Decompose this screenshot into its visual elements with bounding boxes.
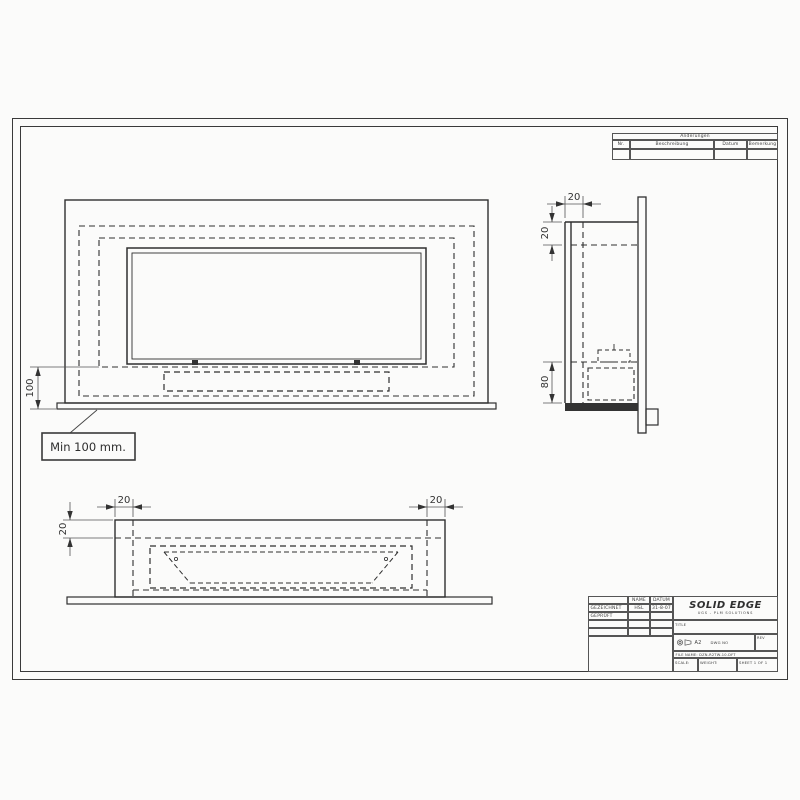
callout-label: Min 100 mm. xyxy=(50,440,126,454)
dim-bottom-front-20-label: 20 xyxy=(58,523,69,536)
approval-empty xyxy=(588,628,628,636)
burner-tray-hidden-front xyxy=(164,372,389,391)
dim-side-top-20-label: 20 xyxy=(540,227,551,240)
approval-drawn-date: 31-8-07 xyxy=(650,604,673,612)
dimension-side-depth: 20 xyxy=(547,192,601,218)
weight-field: WEIGHT: xyxy=(698,658,737,672)
brand-logo-text: SOLID EDGE xyxy=(689,601,762,611)
revision-row-empty xyxy=(747,149,778,160)
approval-empty xyxy=(628,628,650,636)
file-name-field: FILE NAME: DZN-R2TW-10.DFT xyxy=(673,651,778,658)
approval-checked-name xyxy=(628,612,650,620)
revision-col-date: Datum xyxy=(714,140,747,149)
dim-bottom-right-20-label: 20 xyxy=(430,495,443,506)
dimension-side-top-wall: 20 xyxy=(540,206,562,261)
sheet-size: A2 xyxy=(695,640,702,646)
approval-header-blank xyxy=(588,596,628,604)
drawing-area: 100 Min 100 mm. 20 20 xyxy=(0,0,800,800)
revision-table-title: Änderungen xyxy=(612,133,778,140)
dimension-bottom-right-wall: 20 xyxy=(409,495,463,517)
sheet-field: SHEET 1 OF 1 xyxy=(737,658,778,672)
dwg-no-label: DWG NO xyxy=(711,640,729,645)
approval-empty xyxy=(628,620,650,628)
rev-field: REV xyxy=(755,634,778,651)
scale-field: SCALE: xyxy=(673,658,698,672)
dim-side-80-label: 80 xyxy=(540,376,551,389)
dimension-bottom-front-wall: 20 xyxy=(58,502,113,556)
dim-100-label: 100 xyxy=(25,378,36,397)
dimension-bottom-left-wall: 20 xyxy=(97,495,151,517)
title-field: TITLE xyxy=(673,620,778,634)
revision-row-empty xyxy=(714,149,747,160)
bottom-view xyxy=(67,520,492,604)
revision-row-empty xyxy=(612,149,630,160)
approval-empty xyxy=(650,628,673,636)
burner-tray-hidden-side xyxy=(588,368,634,400)
approval-empty xyxy=(588,620,628,628)
revision-col-nr: Nr. xyxy=(612,140,630,149)
front-view xyxy=(57,200,496,409)
dim-side-20-label: 20 xyxy=(568,192,581,203)
revision-col-description: Beschreibung xyxy=(630,140,714,149)
approval-drawn-name: HSL xyxy=(628,604,650,612)
revision-col-note: Bemerkung xyxy=(747,140,778,149)
brand-box: SOLID EDGE UGS - PLM SOLUTIONS xyxy=(673,596,778,620)
approval-header-name: NAME xyxy=(628,596,650,604)
title-block: NAME DATUM GEZEICHNET HSL 31-8-07 GEPRÜF… xyxy=(588,596,778,672)
side-view xyxy=(565,197,658,433)
approval-checked-date xyxy=(650,612,673,620)
min-height-callout: Min 100 mm. xyxy=(42,410,135,460)
approval-checked-label: GEPRÜFT xyxy=(588,612,628,620)
approval-drawn-label: GEZEICHNET xyxy=(588,604,628,612)
glass-clip-right xyxy=(354,360,360,365)
revision-table: Änderungen Nr. Beschreibung Datum Bemerk… xyxy=(612,133,778,160)
dimension-side-bottom: 80 xyxy=(540,362,562,403)
approval-empty xyxy=(650,620,673,628)
size-dwg-field: A2 DWG NO xyxy=(673,634,755,651)
dim-bottom-left-20-label: 20 xyxy=(118,495,131,506)
projection-symbol-icon xyxy=(676,638,692,647)
approval-notes-area xyxy=(588,636,673,672)
approval-header-date: DATUM xyxy=(650,596,673,604)
glass-clip-left xyxy=(192,360,198,365)
revision-row-empty xyxy=(630,149,714,160)
brand-subtitle: UGS - PLM SOLUTIONS xyxy=(698,611,754,616)
